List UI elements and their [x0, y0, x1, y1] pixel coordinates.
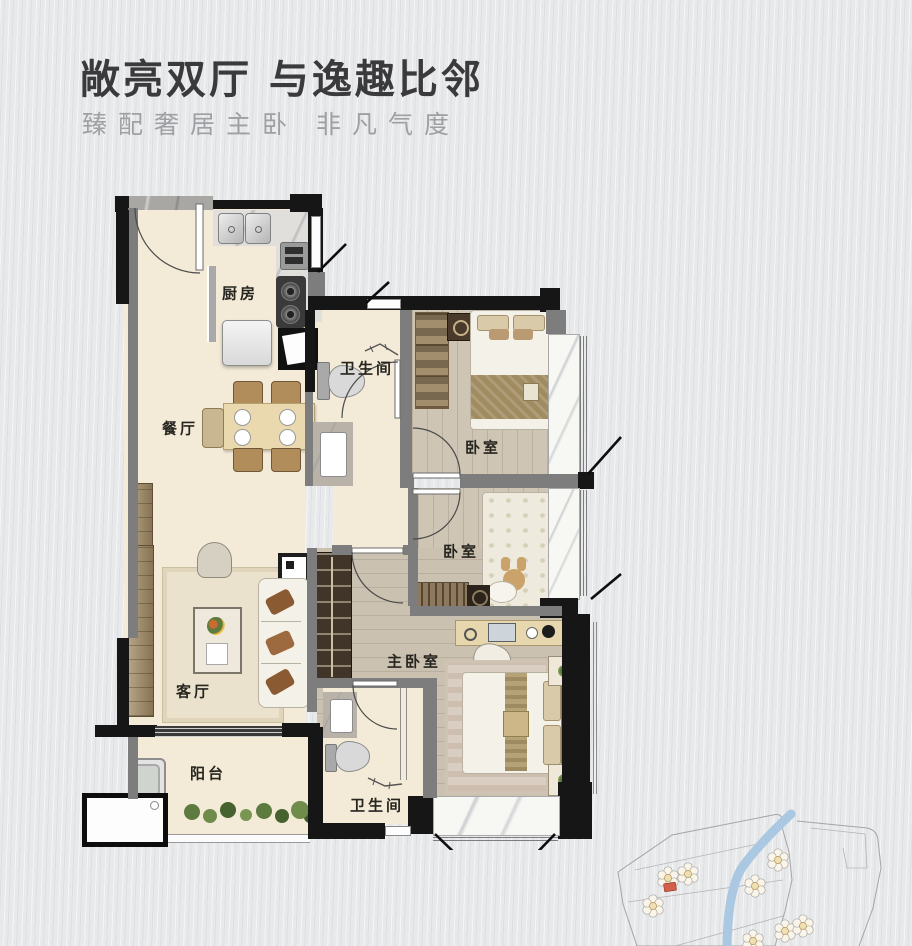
bath-bottom-window: [385, 826, 411, 836]
wall: [282, 723, 320, 737]
dining-table: [223, 403, 315, 450]
site-plan-map: [615, 808, 912, 946]
bed-mid: [482, 492, 552, 610]
pillow: [489, 329, 509, 340]
wall: [117, 638, 129, 726]
teddy-ears: [517, 557, 526, 571]
callout-line-bay-window-1: [588, 437, 621, 474]
wall: [540, 288, 560, 312]
basin-counter-top: [313, 422, 353, 486]
flower-decor: [207, 617, 225, 635]
wall: [410, 606, 562, 616]
room-label-balcony: 阳台: [190, 763, 226, 784]
wall: [308, 727, 323, 839]
window-frame-lines: [593, 622, 598, 794]
burner: [281, 282, 300, 301]
wall: [116, 210, 129, 304]
sofa: [258, 578, 310, 708]
wall: [423, 678, 437, 798]
room-label-bath-bottom: 卫生间: [350, 795, 404, 816]
wall: [305, 392, 313, 486]
room-label-living: 客厅: [176, 681, 212, 702]
wall: [400, 310, 412, 478]
monitor-icon: [488, 623, 516, 642]
wardrobe: [415, 312, 449, 409]
side-table-center: [286, 561, 294, 569]
wall: [332, 545, 352, 555]
place-setting: [234, 409, 251, 426]
wardrobe-rail: [331, 557, 333, 677]
wall: [323, 823, 385, 839]
sliding-door-living-balcony: [155, 726, 285, 737]
master-wardrobe: [313, 552, 352, 684]
dining-chair: [233, 448, 263, 472]
room-label-bedroom-mid: 卧室: [443, 541, 479, 562]
pillow: [487, 581, 517, 603]
appliance-slot: [285, 247, 303, 254]
wall: [562, 614, 590, 786]
wall: [128, 737, 138, 799]
blanket-card: [503, 711, 529, 737]
balcony-plants: [184, 804, 200, 820]
bay-window-sill: [548, 488, 580, 600]
wall: [213, 200, 293, 209]
desk: [455, 620, 564, 646]
basin: [320, 432, 347, 477]
room-label-bath-top: 卫生间: [340, 358, 394, 379]
master-bay-window-sill: [433, 796, 560, 836]
sink-drain: [228, 226, 235, 233]
appliance-slot: [285, 257, 303, 264]
page: { "header": { "title": "敞亮双厅 与逸趣比邻", "su…: [0, 0, 912, 946]
wall: [95, 725, 157, 737]
corridor-floor: [333, 482, 410, 548]
sofa-seam: [261, 621, 301, 622]
dining-chair: [271, 381, 301, 405]
pillow: [543, 681, 561, 721]
wall: [558, 782, 592, 839]
place-setting: [279, 429, 296, 446]
fridge-icon: [222, 320, 272, 366]
desk-lamp: [464, 628, 477, 641]
table-card: [206, 643, 228, 665]
cup: [526, 627, 538, 639]
wall: [546, 474, 578, 488]
place-setting: [234, 429, 251, 446]
kitchen-appliance-icon: [280, 242, 309, 270]
armchair-icon: [197, 542, 232, 578]
master-bed: [462, 672, 567, 774]
shower-glass: [406, 688, 407, 780]
sofa-cushion: [264, 668, 296, 697]
page-title: 敞亮双厅 与逸趣比邻: [80, 47, 484, 105]
wall: [308, 296, 560, 310]
bay-window-sill: [548, 334, 580, 482]
room-label-dining: 餐厅: [162, 418, 198, 439]
highlighted-building: [664, 882, 677, 892]
lamp: [453, 320, 469, 336]
wall: [305, 310, 315, 392]
teddy-ears: [501, 557, 510, 571]
bath-top-window: [367, 299, 401, 309]
dining-chair: [271, 448, 301, 472]
site-block-line: [811, 828, 867, 868]
bay-window-glass: [580, 336, 587, 478]
drain-hole: [150, 801, 159, 810]
wall: [546, 310, 566, 334]
wall: [578, 472, 594, 489]
wall: [403, 545, 412, 555]
shower-glass: [400, 688, 401, 780]
room-label-bedroom-top: 卧室: [465, 437, 501, 458]
sofa-cushion: [264, 588, 295, 616]
speaker-icon: [467, 585, 490, 608]
bay-window-glass: [580, 490, 587, 596]
dining-chair: [233, 381, 263, 405]
room-label-master: 主卧室: [387, 651, 441, 672]
wall: [400, 474, 414, 488]
sofa-cushion: [264, 629, 295, 656]
wall: [310, 678, 424, 688]
room-label-kitchen: 厨房: [222, 283, 258, 304]
gas-stove-icon: [276, 276, 306, 328]
page-subtitle: 臻配奢居主卧 非凡气度: [82, 105, 460, 141]
basin-counter-bottom: [323, 692, 357, 738]
basin: [330, 699, 353, 733]
wall: [307, 548, 317, 712]
kitchen-window: [311, 216, 321, 268]
pillow: [543, 725, 561, 765]
wall-entry-stone: [129, 196, 213, 210]
wall: [128, 208, 138, 638]
headphones: [542, 625, 555, 638]
coffee-table: [193, 607, 242, 674]
wall: [460, 474, 548, 488]
master-bay-window-glass: [433, 836, 558, 841]
ac-platform: [82, 793, 168, 847]
floor-plan: 厨房 餐厅 卫生间 卧室 卧室 客厅 主卧室 阳台 卫生间: [80, 186, 650, 850]
kitchen-glass-partition: [207, 266, 216, 342]
pillow: [513, 329, 533, 340]
blanket-card: [523, 383, 539, 401]
speaker-cone: [472, 590, 488, 606]
burner: [281, 305, 300, 324]
place-setting: [279, 409, 296, 426]
wall: [408, 796, 433, 834]
callout-line-bay-window-2: [591, 574, 621, 599]
dining-armchair: [202, 408, 224, 448]
nightstand: [447, 313, 472, 341]
sofa-seam: [261, 663, 301, 664]
sink-drain: [255, 226, 262, 233]
bed-top: [470, 310, 552, 430]
